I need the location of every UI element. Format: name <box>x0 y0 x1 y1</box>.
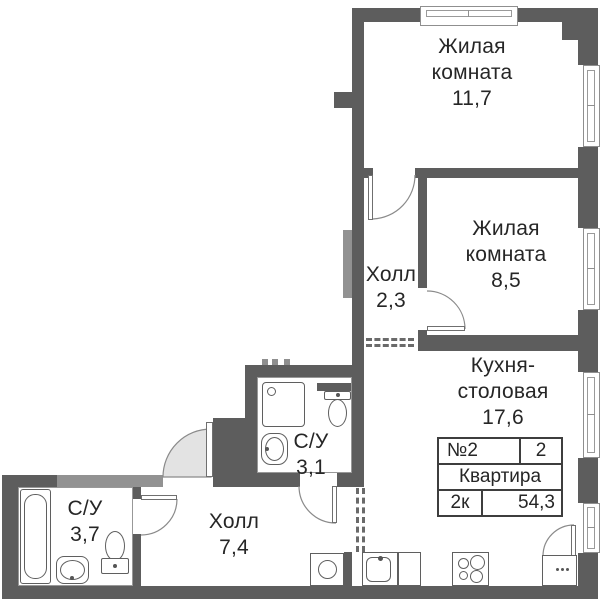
fridge-dot <box>566 568 569 571</box>
room-area: 11,7 <box>402 86 542 112</box>
toilet-button <box>113 564 117 568</box>
room-area: 3,7 <box>50 522 120 548</box>
toilet-bowl <box>328 399 347 427</box>
wall-bath2-top-light <box>57 475 163 487</box>
room-name: С/У <box>50 496 120 522</box>
wall-neighbor-stub-1 <box>334 92 352 108</box>
toilet-button <box>336 393 340 397</box>
room-label-kitchen: Кухня-столовая 17,6 <box>433 353 573 431</box>
info-table: №2 2 Квартира 2к 54,3 <box>437 437 563 517</box>
room-label-hall-main: Холл 7,4 <box>199 509 269 561</box>
window-mullion <box>587 414 595 415</box>
window-mullion <box>468 10 469 17</box>
room-name: Холл <box>356 262 426 288</box>
flat-label: Квартира <box>439 465 561 489</box>
wall-bottom <box>2 586 598 599</box>
room-label-bath-small: С/У 3,1 <box>276 429 346 481</box>
window-mullion <box>587 527 595 528</box>
wall-bath1-top <box>245 365 364 377</box>
wall-kitchen-top <box>418 335 598 351</box>
window-frame <box>587 377 595 453</box>
door-arc <box>373 175 415 219</box>
wall-bath2-right-bottom <box>133 534 141 586</box>
room-label-living2: Жилая комната 8,5 <box>436 216 576 294</box>
entrance-door-leaf <box>206 422 213 477</box>
room-area: 8,5 <box>436 268 576 294</box>
door-leaf <box>332 486 337 523</box>
room-name: Холл <box>199 509 269 535</box>
burner-icon <box>470 555 485 570</box>
vent-tick <box>272 359 278 365</box>
room-label-living1: Жилая комната 11,7 <box>402 34 542 112</box>
wall-neighbor-stub-2 <box>343 230 352 298</box>
window-frame <box>587 70 595 142</box>
bathtub-inner <box>24 494 47 579</box>
burner-icon <box>459 571 468 580</box>
wall-right-2 <box>578 147 598 228</box>
fridge-dot <box>561 568 564 571</box>
zone-boundary-dashed <box>366 338 414 341</box>
zone-boundary-dashed <box>362 488 365 552</box>
vent-tick <box>262 359 268 365</box>
wall-right-4 <box>578 458 598 503</box>
faucet-icon <box>378 556 383 561</box>
info-table-row: 2к 54,3 <box>439 489 561 515</box>
zone-boundary-dashed <box>366 344 414 347</box>
fridge-dot <box>556 568 559 571</box>
room-label-hall-small: Холл 2,3 <box>356 262 426 314</box>
room-area: 17,6 <box>433 405 573 431</box>
burner-icon <box>458 558 469 569</box>
total-area: 54,3 <box>483 491 561 515</box>
room-name: Жилая комната <box>402 34 542 86</box>
wall-bath2-right-top <box>133 487 141 499</box>
door-leaf <box>427 326 465 331</box>
info-table-row: №2 2 <box>439 439 561 463</box>
vent-tick <box>284 359 290 365</box>
floor-plan: Жилая комната 11,7 Жилая комната 8,5 Хол… <box>0 0 603 600</box>
washing-machine-drum <box>318 560 337 579</box>
flat-number: №2 <box>439 439 521 463</box>
door-arc <box>299 486 336 523</box>
faucet-icon <box>70 576 74 580</box>
room-name: Жилая комната <box>436 216 576 268</box>
appliance-cabinet <box>398 552 421 586</box>
wall-right-1 <box>578 22 598 65</box>
burner-icon <box>470 570 483 583</box>
window-mullion <box>587 105 595 106</box>
room-area: 7,4 <box>199 535 269 561</box>
room-name: Кухня-столовая <box>433 353 573 405</box>
faucet-icon <box>265 447 269 451</box>
room-label-bath-main: С/У 3,7 <box>50 496 120 548</box>
shower-drain <box>267 387 276 396</box>
door-arc <box>141 499 177 535</box>
room-area: 2,3 <box>356 288 426 314</box>
door-arc <box>427 291 465 329</box>
room-name: С/У <box>276 429 346 455</box>
fridge-door-arc <box>543 525 574 556</box>
wall-top-left <box>352 8 422 22</box>
entrance-door-swing <box>163 429 211 477</box>
wall-kitchen-left <box>352 377 364 487</box>
window-mullion <box>587 268 595 269</box>
door-leaf <box>368 175 373 220</box>
window-frame <box>587 507 595 549</box>
fridge <box>542 555 577 586</box>
flat-type: 2к <box>439 491 483 515</box>
room-area: 3,1 <box>276 455 346 481</box>
wall-divider-rooms <box>415 168 598 178</box>
info-table-row: Квартира <box>439 463 561 489</box>
door-leaf <box>141 495 177 500</box>
window-frame <box>587 233 595 305</box>
wall-counter-stub <box>344 552 352 586</box>
zone-boundary-dashed <box>356 488 359 552</box>
window-frame <box>426 10 512 17</box>
rooms-count: 2 <box>521 439 561 463</box>
wall-entrance-jamb <box>213 418 257 487</box>
wall-left-lower <box>2 475 18 598</box>
fridge-door-leaf <box>571 525 576 556</box>
